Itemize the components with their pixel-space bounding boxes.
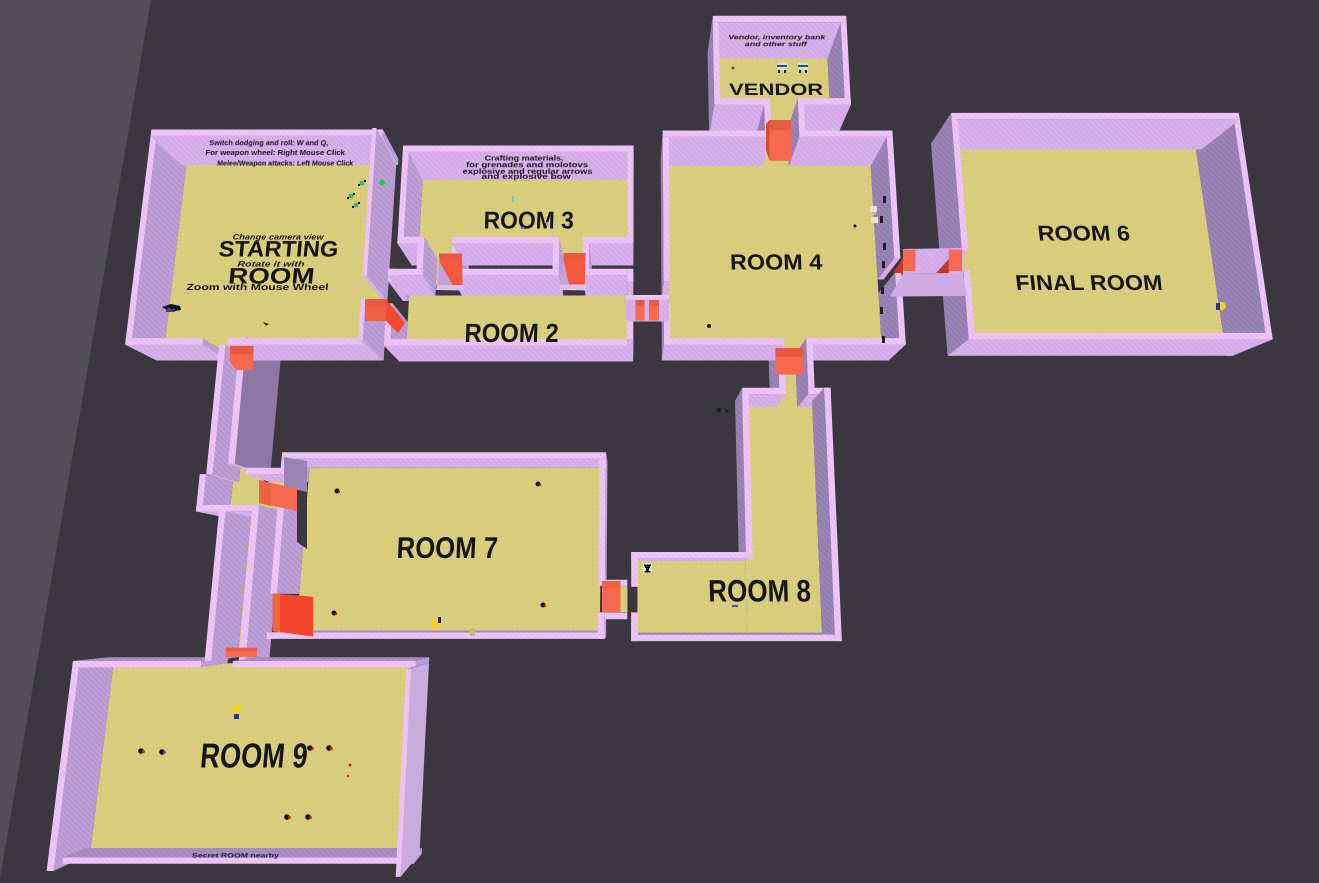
svg-text:Melee/Weapon attacks: Left Mou: Melee/Weapon attacks: Left Mouse Click bbox=[217, 159, 355, 168]
svg-text:and explosive bow: and explosive bow bbox=[481, 172, 571, 181]
svg-text:For weapon wheel: Right Mouse: For weapon wheel: Right Mouse Click bbox=[205, 148, 346, 157]
svg-text:STARTING: STARTING bbox=[218, 236, 340, 261]
svg-text:ROOM 7: ROOM 7 bbox=[396, 532, 499, 565]
svg-text:ROOM 9: ROOM 9 bbox=[199, 737, 310, 776]
svg-text:ROOM 8: ROOM 8 bbox=[708, 574, 812, 609]
svg-text:ROOM 4: ROOM 4 bbox=[730, 249, 823, 274]
svg-text:Secret ROOM nearby: Secret ROOM nearby bbox=[192, 853, 280, 860]
svg-text:Switch dodging and roll: W and: Switch dodging and roll: W and Q, bbox=[209, 138, 329, 147]
svg-text:ROOM 6: ROOM 6 bbox=[1036, 222, 1131, 246]
svg-text:Zoom with Mouse Wheel: Zoom with Mouse Wheel bbox=[186, 282, 329, 292]
svg-text:ROOM 3: ROOM 3 bbox=[483, 208, 574, 235]
svg-text:and other stuff: and other stuff bbox=[745, 41, 808, 48]
svg-text:FINAL ROOM: FINAL ROOM bbox=[1014, 270, 1164, 295]
svg-text:ROOM 2: ROOM 2 bbox=[464, 318, 559, 348]
svg-text:VENDOR: VENDOR bbox=[729, 81, 824, 99]
